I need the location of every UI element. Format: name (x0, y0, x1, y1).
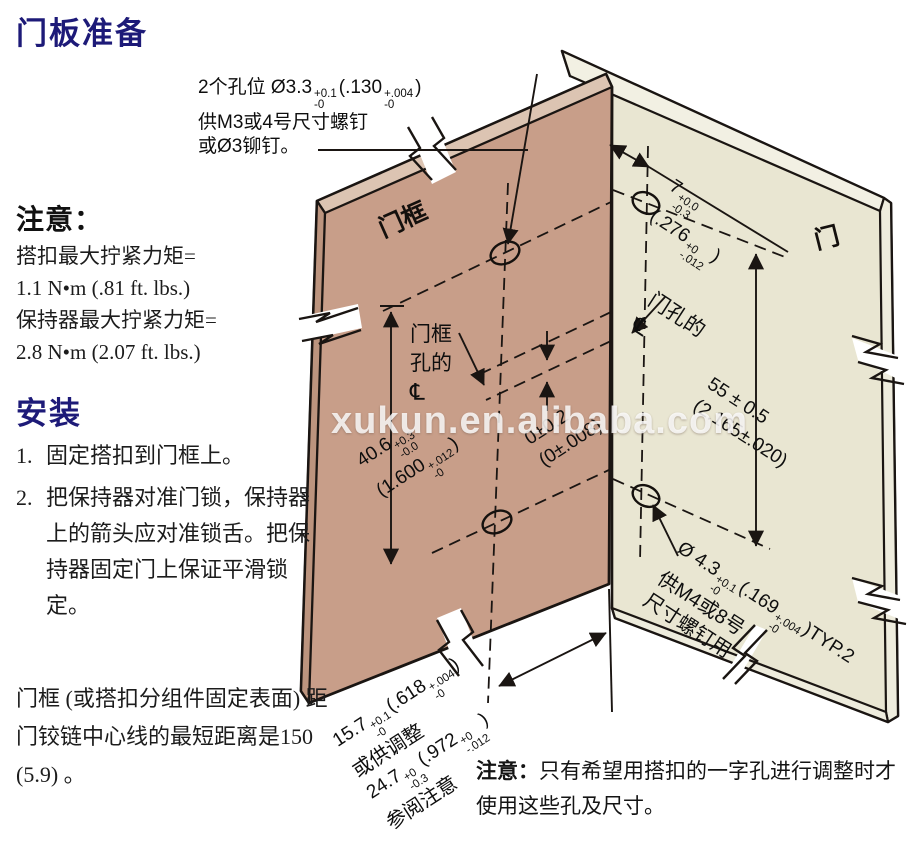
watermark: xukun.en.alibaba.com (331, 400, 748, 443)
hole-spec-line-1: 2个孔位 Ø3.3+0.1-0(.130+.004-0) (198, 76, 422, 111)
tolerance-stack: +.004-0 (384, 89, 413, 111)
step-text: 固定搭扣到门框上。 (46, 438, 244, 474)
frame-panel-silhouette (301, 74, 612, 703)
install-steps: 1. 固定搭扣到门框上。 2. 把保持器对准门锁，保持器上的箭头应对准锁舌。把保… (16, 438, 321, 630)
frame-holes-cl-callout: 门框 孔的 ℄ (410, 320, 452, 407)
torque-line-2: 1.1 N•m (.81 ft. lbs.) (16, 272, 217, 304)
hole-spec-annotation: 2个孔位 Ø3.3+0.1-0(.130+.004-0) 供M3或4号尺寸螺钉 … (198, 76, 422, 159)
hole-spec-close: ) (415, 77, 421, 98)
step-number: 1. (16, 438, 46, 474)
install-step-1: 1. 固定搭扣到门框上。 (16, 438, 321, 474)
torque-line-4: 2.8 N•m (2.07 ft. lbs.) (16, 336, 217, 368)
frame-cl-line2: 孔的 (410, 349, 452, 378)
step-number: 2. (16, 480, 46, 624)
torque-line-3: 保持器最大拧紧力矩= (16, 304, 217, 336)
dim-bottom-line (499, 633, 606, 686)
door-frame-panel (301, 74, 612, 703)
install-heading: 安装 (16, 388, 82, 433)
adjustment-note-text: 只有希望用搭扣的一字孔进行调整时才使用这些孔及尺寸。 (476, 759, 896, 818)
hole-spec-text: 2个孔位 Ø3.3 (198, 77, 312, 98)
frame-cl-line1: 门框 (410, 320, 452, 349)
note-heading: 注意： (16, 198, 103, 238)
install-step-2: 2. 把保持器对准门锁，保持器上的箭头应对准锁舌。把保持器固定门上保证平滑锁定。 (16, 480, 321, 624)
hole-spec-inch: (.130 (339, 77, 382, 98)
torque-line-1: 搭扣最大拧紧力矩= (16, 240, 217, 272)
tolerance-stack: +0.1-0 (314, 89, 337, 111)
page-title: 门板准备 (16, 8, 148, 53)
adjustment-note-heading: 注意： (476, 760, 539, 783)
hole-spec-line-2: 供M3或4号尺寸螺钉 (198, 111, 422, 135)
hinge-distance-note: 门框 (或搭扣分组件固定表面) 距门铰链中心线的最短距离是150 (5.9) 。 (16, 680, 331, 794)
torque-note: 搭扣最大拧紧力矩= 1.1 N•m (.81 ft. lbs.) 保持器最大拧紧… (16, 240, 217, 368)
step-text: 把保持器对准门锁，保持器上的箭头应对准锁舌。把保持器固定门上保证平滑锁定。 (46, 480, 321, 624)
adjustment-note: 注意：只有希望用搭扣的一字孔进行调整时才使用这些孔及尺寸。 (476, 754, 912, 823)
instruction-sheet: 门板准备 注意： 搭扣最大拧紧力矩= 1.1 N•m (.81 ft. lbs.… (0, 0, 921, 844)
hole-spec-line-3: 或Ø3铆钉。 (198, 135, 422, 159)
